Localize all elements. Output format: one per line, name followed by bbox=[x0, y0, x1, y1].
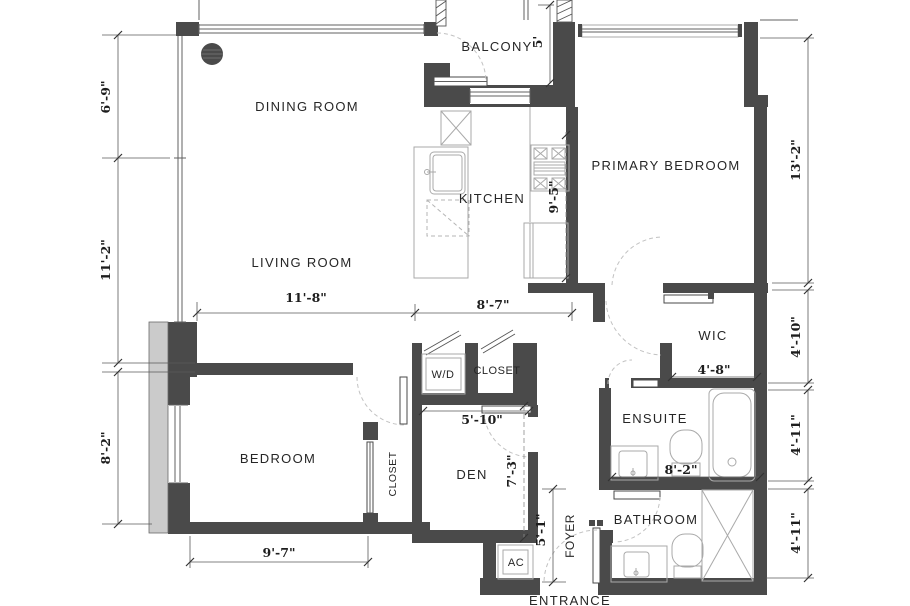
bathroom-fixtures bbox=[611, 490, 753, 582]
dim-ensuite-width: 8'-2" bbox=[665, 462, 698, 477]
dim-bedroom-width: 9'-7" bbox=[263, 545, 296, 560]
dim-den-width: 5'-10" bbox=[461, 412, 503, 427]
room-label-washer-dryer: W/D bbox=[432, 369, 455, 381]
dim-balcony-depth: 5' bbox=[530, 36, 545, 49]
room-label-bathroom: BATHROOM bbox=[614, 512, 699, 527]
shower bbox=[702, 490, 753, 581]
room-label-bedroom: BEDROOM bbox=[240, 451, 316, 466]
bathroom-toilet bbox=[672, 534, 703, 578]
dim-bedroom-depth: 8'-2" bbox=[98, 432, 113, 465]
room-label-living-room: LIVING ROOM bbox=[252, 255, 353, 270]
room-label-foyer: FOYER bbox=[563, 514, 577, 558]
bathroom-door bbox=[614, 491, 660, 499]
room-label-bedroom-closet: CLOSET bbox=[387, 451, 399, 496]
bedroom-door bbox=[400, 377, 407, 424]
structural-piers bbox=[149, 0, 572, 533]
room-label-dining-room: DINING ROOM bbox=[255, 99, 359, 114]
wic-door bbox=[664, 295, 713, 303]
dim-foyer-depth: 5'-1" bbox=[533, 514, 548, 547]
dim-den-depth: 7'-3" bbox=[504, 455, 519, 488]
primary-bedroom-door-arc bbox=[612, 237, 662, 285]
dim-primary-depth: 13'-2" bbox=[788, 139, 803, 181]
room-label-wic: WIC bbox=[698, 328, 727, 343]
entrance-door bbox=[593, 528, 600, 583]
bathtub bbox=[709, 389, 755, 481]
wd-bifold-door bbox=[424, 331, 461, 355]
room-label-ac: AC bbox=[508, 557, 524, 569]
room-label-balcony: BALCONY bbox=[461, 39, 532, 54]
room-label-entrance: ENTRANCE bbox=[529, 593, 611, 606]
dim-wic-depth: 4'-10" bbox=[788, 316, 803, 358]
fridge bbox=[524, 223, 568, 278]
closet-bifold-door bbox=[481, 330, 515, 353]
dim-kitchen-depth: 9'-5" bbox=[546, 181, 561, 214]
dim-wic-width: 4'-8" bbox=[698, 362, 731, 377]
dim-living-width: 11'-8" bbox=[285, 290, 327, 305]
room-label-hall-closet: CLOSET bbox=[473, 365, 520, 377]
dim-dining-depth: 6'-9" bbox=[98, 81, 113, 114]
room-label-den: DEN bbox=[456, 467, 487, 482]
room-label-kitchen: KITCHEN bbox=[459, 191, 525, 206]
dim-living-depth: 11'-2" bbox=[98, 239, 113, 281]
room-label-ensuite: ENSUITE bbox=[622, 411, 687, 426]
room-labels: DINING ROOM BALCONY KITCHEN PRIMARY BEDR… bbox=[240, 39, 741, 606]
kitchen-sink bbox=[430, 152, 465, 194]
floor-plan-page: DINING ROOM BALCONY KITCHEN PRIMARY BEDR… bbox=[0, 0, 910, 606]
dim-bathroom-depth: 4'-11" bbox=[788, 512, 803, 554]
ensuite-door bbox=[633, 380, 658, 387]
dim-kitchen-width: 8'-7" bbox=[477, 297, 510, 312]
floor-plan-canvas: DINING ROOM BALCONY KITCHEN PRIMARY BEDR… bbox=[0, 0, 910, 606]
dim-ensuite-depth: 4'-11" bbox=[788, 414, 803, 456]
kitchen-island bbox=[414, 147, 468, 278]
room-label-primary-bedroom: PRIMARY BEDROOM bbox=[591, 158, 740, 173]
